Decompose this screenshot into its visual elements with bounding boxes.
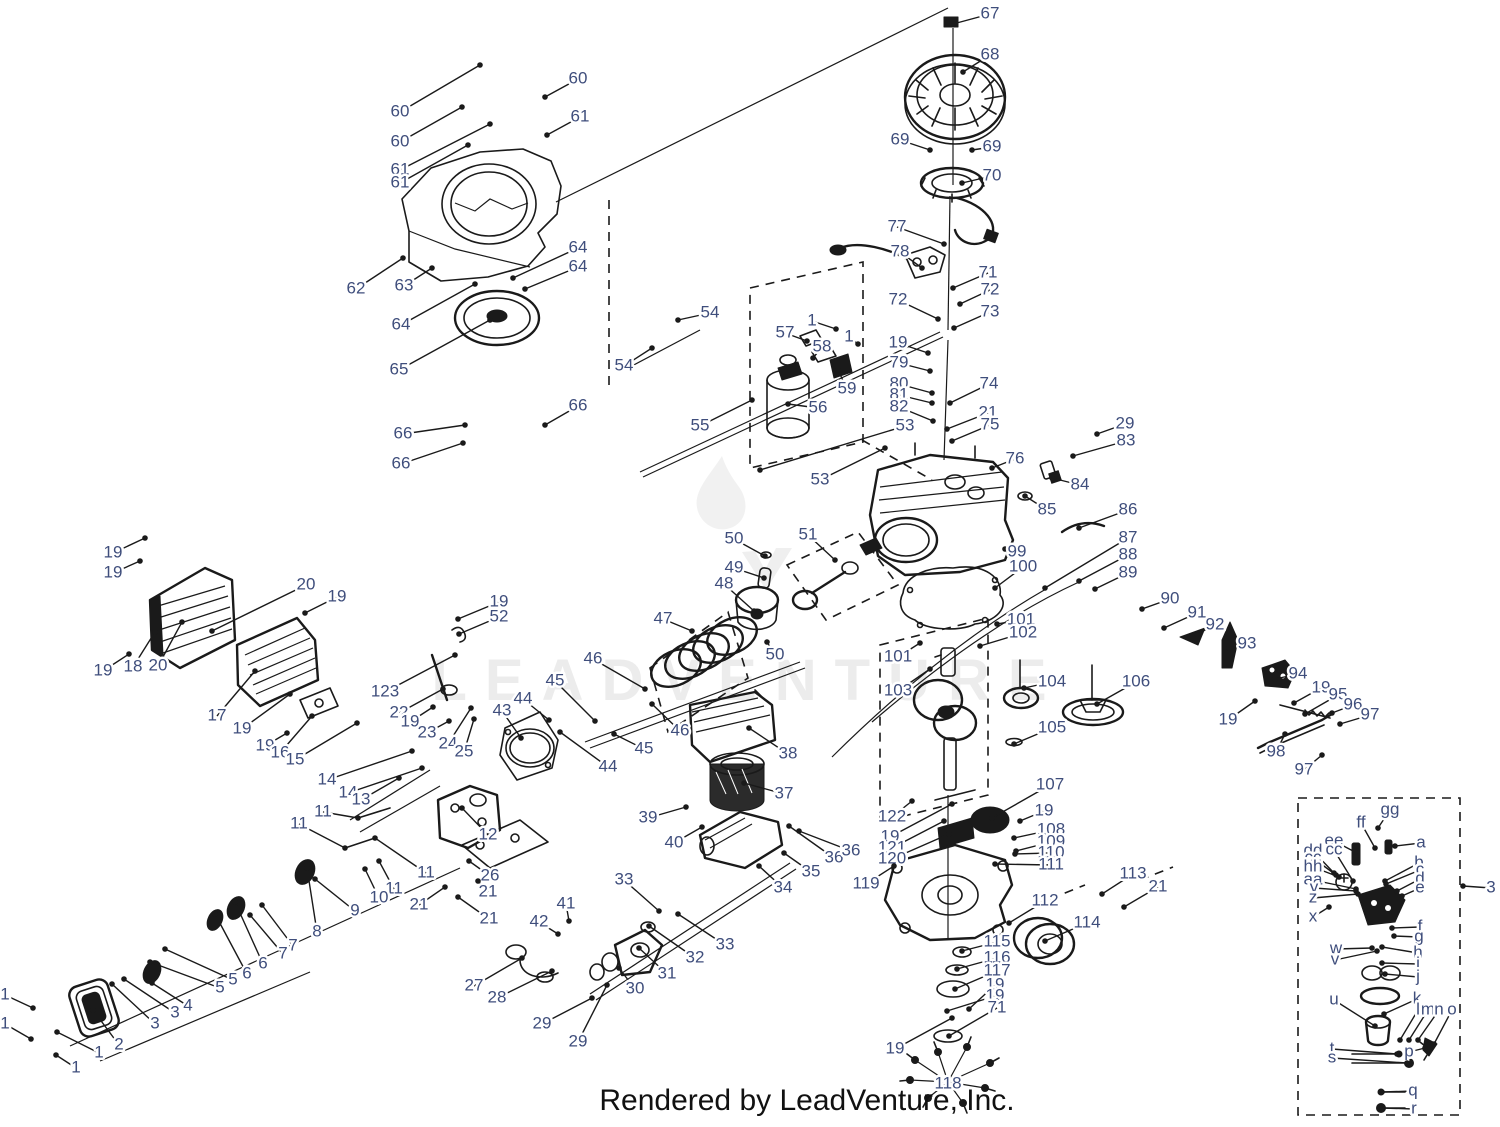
part-target-dot bbox=[746, 725, 752, 731]
part-target-dot bbox=[689, 628, 695, 634]
connecting-rod-drawing bbox=[793, 538, 882, 609]
part-target-dot bbox=[468, 705, 474, 711]
callout-105: 105 bbox=[1038, 717, 1066, 736]
part-target-dot bbox=[959, 948, 965, 954]
carburetor-drawing bbox=[590, 922, 662, 980]
part-target-dot bbox=[362, 866, 368, 872]
leader-line bbox=[1385, 974, 1418, 977]
part-target-dot bbox=[1381, 1011, 1387, 1017]
part-target-dot bbox=[992, 861, 998, 867]
part-target-dot bbox=[1431, 1041, 1437, 1047]
part-target-dot bbox=[1379, 944, 1385, 950]
part-target-dot bbox=[510, 275, 516, 281]
callout-7: 7 bbox=[288, 935, 297, 954]
callout-n: n bbox=[1434, 999, 1443, 1018]
callout-78: 78 bbox=[891, 241, 910, 260]
part-target-dot bbox=[642, 686, 648, 692]
callout-61: 61 bbox=[391, 172, 410, 191]
part-target-dot bbox=[649, 701, 655, 707]
callout-11: 11 bbox=[417, 862, 435, 881]
part-target-dot bbox=[796, 828, 802, 834]
part-target-dot bbox=[376, 858, 382, 864]
callout-28: 28 bbox=[488, 987, 507, 1006]
part-target-dot bbox=[882, 445, 888, 451]
muffler-heat-shield-drawing bbox=[150, 568, 235, 668]
part-target-dot bbox=[989, 465, 995, 471]
callout-40: 40 bbox=[665, 832, 684, 851]
part-target-dot bbox=[927, 368, 933, 374]
part-target-dot bbox=[833, 326, 839, 332]
part-target-dot bbox=[1372, 1023, 1378, 1029]
callout-61: 61 bbox=[571, 106, 590, 125]
part-target-dot bbox=[419, 765, 425, 771]
cylinder-gasket-drawing bbox=[901, 567, 1004, 629]
callout-20: 20 bbox=[297, 574, 316, 593]
leader-line bbox=[150, 962, 220, 988]
callout-30: 30 bbox=[626, 978, 645, 997]
callout-59: 59 bbox=[838, 378, 857, 397]
callout-54: 54 bbox=[615, 355, 634, 374]
callout-6: 6 bbox=[242, 963, 251, 982]
part-target-dot bbox=[927, 147, 933, 153]
part-target-dot bbox=[1422, 1045, 1428, 1051]
part-target-dot bbox=[994, 621, 1000, 627]
part-target-dot bbox=[456, 631, 462, 637]
part-target-dot bbox=[372, 835, 378, 841]
callout-r: r bbox=[1411, 1098, 1417, 1117]
part-target-dot bbox=[944, 1008, 950, 1014]
part-target-dot bbox=[1336, 874, 1342, 880]
callout-114: 114 bbox=[1073, 912, 1100, 931]
callout-50: 50 bbox=[766, 644, 785, 663]
callout-50: 50 bbox=[725, 528, 744, 547]
part-target-dot bbox=[751, 608, 757, 614]
part-target-dot bbox=[302, 610, 308, 616]
part-target-dot bbox=[855, 341, 861, 347]
part-target-dot bbox=[1404, 1060, 1410, 1066]
part-target-dot bbox=[455, 894, 461, 900]
part-target-dot bbox=[1012, 851, 1018, 857]
part-target-dot bbox=[1017, 818, 1023, 824]
part-target-dot bbox=[90, 1007, 96, 1013]
callout-m: m bbox=[1421, 999, 1435, 1018]
part-target-dot bbox=[919, 265, 925, 271]
part-target-dot bbox=[1092, 586, 1098, 592]
part-target-dot bbox=[1394, 888, 1400, 894]
callout-o: o bbox=[1447, 999, 1456, 1018]
callout-113: 113 bbox=[1119, 863, 1146, 882]
part-target-dot bbox=[757, 467, 763, 473]
part-target-dot bbox=[741, 780, 747, 786]
callout-112: 112 bbox=[1031, 890, 1058, 909]
leader-line bbox=[1045, 538, 1128, 588]
part-target-dot bbox=[1389, 925, 1395, 931]
leader-line bbox=[820, 448, 885, 480]
callout-92: 92 bbox=[1206, 614, 1225, 633]
part-target-dot bbox=[675, 317, 681, 323]
part-target-dot bbox=[949, 438, 955, 444]
oil-seal-drawing bbox=[934, 947, 971, 1042]
part-target-dot bbox=[1291, 700, 1297, 706]
part-target-dot bbox=[941, 241, 947, 247]
part-target-dot bbox=[646, 923, 652, 929]
callout-20: 20 bbox=[149, 655, 168, 674]
callout-102: 102 bbox=[1009, 622, 1037, 641]
part-target-dot bbox=[949, 801, 955, 807]
part-target-dot bbox=[636, 945, 642, 951]
callout-62: 62 bbox=[347, 278, 366, 297]
part-target-dot bbox=[546, 717, 552, 723]
part-target-dot bbox=[355, 815, 361, 821]
callout-68: 68 bbox=[981, 44, 1000, 63]
callout-89: 89 bbox=[1119, 562, 1138, 581]
part-target-dot bbox=[121, 976, 127, 982]
part-target-dot bbox=[400, 255, 406, 261]
part-target-dot bbox=[989, 815, 995, 821]
part-target-dot bbox=[342, 845, 348, 851]
callout-66: 66 bbox=[392, 453, 411, 472]
callout-60: 60 bbox=[391, 101, 410, 120]
part-target-dot bbox=[1282, 731, 1288, 737]
leader-line bbox=[400, 65, 480, 112]
callout-60: 60 bbox=[569, 68, 588, 87]
leader-line bbox=[165, 949, 233, 980]
part-target-dot bbox=[1194, 631, 1200, 637]
callout-35: 35 bbox=[802, 861, 821, 880]
part-target-dot bbox=[1337, 721, 1343, 727]
part-target-dot bbox=[1369, 945, 1375, 951]
part-target-dot bbox=[946, 831, 952, 837]
part-target-dot bbox=[259, 902, 265, 908]
part-target-dot bbox=[109, 981, 115, 987]
part-target-dot bbox=[1139, 606, 1145, 612]
part-target-dot bbox=[459, 104, 465, 110]
part-target-dot bbox=[1070, 453, 1076, 459]
cylinder-block-drawing bbox=[870, 443, 1013, 575]
callout-21: 21 bbox=[1149, 876, 1168, 895]
callout-47: 47 bbox=[654, 608, 673, 627]
callout-72: 72 bbox=[889, 289, 908, 308]
callout-66: 66 bbox=[394, 423, 413, 442]
callout-69: 69 bbox=[983, 136, 1002, 155]
part-target-dot bbox=[1076, 578, 1082, 584]
part-target-dot bbox=[656, 908, 662, 914]
callout-103: 103 bbox=[884, 680, 912, 699]
callout-72: 72 bbox=[981, 279, 1000, 298]
part-target-dot bbox=[960, 69, 966, 75]
engine-exploded-diagram: LEADVENTURE bbox=[0, 0, 1500, 1127]
callout-q: q bbox=[1408, 1080, 1417, 1099]
part-target-dot bbox=[947, 400, 953, 406]
part-target-dot bbox=[1272, 676, 1278, 682]
connecting-rod-dashed-box bbox=[787, 532, 898, 620]
callout-66: 66 bbox=[569, 395, 588, 414]
callout-gg: gg bbox=[1381, 799, 1400, 818]
part-target-dot bbox=[929, 400, 935, 406]
part-target-dot bbox=[462, 422, 468, 428]
part-target-dot bbox=[959, 180, 965, 186]
callout-60: 60 bbox=[391, 131, 410, 150]
part-target-dot bbox=[891, 863, 897, 869]
part-target-dot bbox=[487, 121, 493, 127]
callout-70: 70 bbox=[983, 165, 1002, 184]
part-target-dot bbox=[149, 980, 155, 986]
air-filter-element-drawing bbox=[710, 753, 764, 811]
callout-8: 8 bbox=[312, 921, 321, 940]
part-target-dot bbox=[162, 946, 168, 952]
part-target-dot bbox=[212, 911, 218, 917]
part-target-dot bbox=[555, 931, 561, 937]
part-target-dot bbox=[1355, 891, 1361, 897]
muffler-drawing bbox=[237, 618, 318, 706]
part-target-dot bbox=[1226, 645, 1232, 651]
callout-74: 74 bbox=[980, 373, 999, 392]
callout-x: x bbox=[1309, 906, 1318, 925]
callout-21: 21 bbox=[410, 894, 429, 913]
part-target-dot bbox=[1379, 1105, 1385, 1111]
part-target-dot bbox=[1326, 904, 1332, 910]
callout-83: 83 bbox=[1117, 430, 1136, 449]
callout-5: 5 bbox=[228, 969, 237, 988]
callout-34: 34 bbox=[774, 877, 793, 896]
callout-91: 91 bbox=[1188, 602, 1207, 621]
part-target-dot bbox=[1021, 685, 1027, 691]
callout-123: 123 bbox=[371, 681, 399, 700]
part-target-dot bbox=[1374, 948, 1380, 954]
part-target-dot bbox=[1049, 475, 1055, 481]
part-target-dot bbox=[604, 982, 610, 988]
part-target-dot bbox=[1375, 825, 1381, 831]
part-target-dot bbox=[429, 265, 435, 271]
part-target-dot bbox=[785, 401, 791, 407]
callout-19: 19 bbox=[104, 542, 123, 561]
part-target-dot bbox=[1383, 881, 1389, 887]
callout-32: 32 bbox=[686, 947, 705, 966]
callout-v: v bbox=[1331, 949, 1340, 968]
callout-56: 56 bbox=[809, 397, 828, 416]
part-target-dot bbox=[756, 863, 762, 869]
recoil-pulley-drawing bbox=[455, 291, 539, 345]
part-target-dot bbox=[957, 301, 963, 307]
part-target-dot bbox=[925, 350, 931, 356]
callout-18: 18 bbox=[124, 656, 143, 675]
callout-86: 86 bbox=[1119, 499, 1138, 518]
callout-12: 12 bbox=[479, 824, 498, 843]
callout-19: 19 bbox=[104, 562, 123, 581]
callout-39: 39 bbox=[639, 807, 658, 826]
leader-line bbox=[1382, 1108, 1414, 1109]
callout-3: 3 bbox=[1486, 877, 1495, 896]
part-target-dot bbox=[944, 426, 950, 432]
callout-49: 49 bbox=[725, 557, 744, 576]
callout-19: 19 bbox=[328, 586, 347, 605]
callout-53: 53 bbox=[896, 415, 915, 434]
part-target-dot bbox=[951, 325, 957, 331]
part-target-dot bbox=[440, 686, 446, 692]
callout-21: 21 bbox=[480, 908, 499, 927]
part-target-dot bbox=[1042, 938, 1048, 944]
part-target-dot bbox=[566, 918, 572, 924]
callout-3: 3 bbox=[170, 1002, 179, 1021]
part-target-dot bbox=[1011, 835, 1017, 841]
callout-43: 43 bbox=[493, 700, 512, 719]
part-target-dot bbox=[147, 959, 153, 965]
part-target-dot bbox=[683, 804, 689, 810]
part-target-dot bbox=[1011, 741, 1017, 747]
callout-122: 122 bbox=[878, 806, 906, 825]
callout-33: 33 bbox=[615, 869, 634, 888]
part-target-dot bbox=[1382, 971, 1388, 977]
part-target-dot bbox=[247, 912, 253, 918]
callout-25: 25 bbox=[455, 741, 474, 760]
part-target-dot bbox=[761, 575, 767, 581]
callout-z: z bbox=[1309, 887, 1318, 906]
part-target-dot bbox=[917, 640, 923, 646]
part-target-dot bbox=[1415, 1037, 1421, 1043]
callout-41: 41 bbox=[557, 893, 576, 912]
callout-101: 101 bbox=[884, 646, 912, 665]
part-target-dot bbox=[977, 643, 983, 649]
part-target-dot bbox=[409, 748, 415, 754]
callout-19: 19 bbox=[886, 1038, 905, 1057]
leader-line bbox=[1382, 963, 1418, 964]
callout-11: 11 bbox=[314, 801, 332, 820]
callout-9: 9 bbox=[350, 900, 359, 919]
callout-1: 1 bbox=[0, 1013, 9, 1032]
callout-31: 31 bbox=[658, 963, 677, 982]
part-target-dot bbox=[54, 1029, 60, 1035]
part-target-dot bbox=[477, 62, 483, 68]
callout-cc: cc bbox=[1326, 839, 1344, 858]
part-target-dot bbox=[487, 317, 493, 323]
callout-38: 38 bbox=[779, 743, 798, 762]
part-target-dot bbox=[966, 1006, 972, 1012]
part-target-dot bbox=[304, 865, 310, 871]
part-target-dot bbox=[675, 911, 681, 917]
part-target-dot bbox=[142, 535, 148, 541]
callout-21: 21 bbox=[479, 881, 498, 900]
callout-46: 46 bbox=[584, 648, 603, 667]
part-target-dot bbox=[786, 823, 792, 829]
part-target-dot bbox=[1161, 625, 1167, 631]
callout-71: 71 bbox=[988, 997, 1007, 1016]
callout-4: 4 bbox=[183, 995, 192, 1014]
part-target-dot bbox=[611, 731, 617, 737]
callout-2: 2 bbox=[114, 1034, 123, 1053]
part-target-dot bbox=[312, 876, 318, 882]
callout-44: 44 bbox=[514, 688, 533, 707]
callout-29: 29 bbox=[533, 1013, 552, 1032]
part-target-dot bbox=[749, 397, 755, 403]
part-target-dot bbox=[30, 1005, 36, 1011]
part-target-dot bbox=[950, 285, 956, 291]
part-target-dot bbox=[460, 440, 466, 446]
callout-14: 14 bbox=[318, 769, 337, 788]
callout-58: 58 bbox=[813, 336, 832, 355]
part-target-dot bbox=[152, 629, 158, 635]
part-target-dot bbox=[941, 818, 947, 824]
part-target-dot bbox=[544, 132, 550, 138]
callout-1: 1 bbox=[71, 1057, 80, 1076]
callout-u: u bbox=[1329, 989, 1338, 1008]
part-target-dot bbox=[1399, 893, 1405, 899]
part-target-dot bbox=[28, 1036, 34, 1042]
callout-29: 29 bbox=[569, 1031, 588, 1050]
part-target-dot bbox=[1352, 849, 1358, 855]
callout-19: 19 bbox=[94, 660, 113, 679]
leader-line bbox=[315, 879, 355, 911]
part-target-dot bbox=[1252, 698, 1258, 704]
callout-111: 111 bbox=[1038, 854, 1064, 873]
part-target-dot bbox=[442, 884, 448, 890]
part-target-dot bbox=[542, 94, 548, 100]
callout-p: p bbox=[1404, 1041, 1413, 1060]
callout-73: 73 bbox=[981, 301, 1000, 320]
part-target-dot bbox=[284, 730, 290, 736]
callout-j: j bbox=[1415, 966, 1420, 985]
part-target-dot bbox=[804, 338, 810, 344]
callout-104: 104 bbox=[1038, 671, 1066, 690]
part-target-dot bbox=[137, 558, 143, 564]
intake-manifold-drawing bbox=[700, 812, 782, 868]
part-target-dot bbox=[1397, 1037, 1403, 1043]
part-target-dot bbox=[1099, 891, 1105, 897]
part-target-dot bbox=[1094, 701, 1100, 707]
callout-65: 65 bbox=[390, 359, 409, 378]
callout-63: 63 bbox=[395, 275, 414, 294]
part-target-dot bbox=[699, 824, 705, 830]
callout-77: 77 bbox=[888, 216, 907, 235]
callout-1: 1 bbox=[94, 1042, 103, 1061]
callout-13: 13 bbox=[352, 789, 371, 808]
callout-23: 23 bbox=[418, 722, 437, 741]
part-target-dot bbox=[935, 316, 941, 322]
callout-e: e bbox=[1415, 877, 1424, 896]
part-target-dot bbox=[949, 1015, 955, 1021]
callout-79: 79 bbox=[890, 352, 909, 371]
callout-37: 37 bbox=[775, 783, 794, 802]
callout-97: 97 bbox=[1361, 704, 1380, 723]
callout-36: 36 bbox=[842, 840, 861, 859]
part-target-dot bbox=[1302, 711, 1308, 717]
part-target-dot bbox=[1042, 585, 1048, 591]
callout-ff: ff bbox=[1356, 812, 1365, 831]
part-target-dot bbox=[616, 965, 622, 971]
callout-76: 76 bbox=[1006, 448, 1025, 467]
callout-119: 119 bbox=[852, 873, 879, 892]
part-target-dot bbox=[466, 858, 472, 864]
callout-10: 10 bbox=[370, 887, 389, 906]
part-target-dot bbox=[835, 367, 841, 373]
callout-84: 84 bbox=[1071, 474, 1090, 493]
part-target-dot bbox=[542, 422, 548, 428]
part-target-dot bbox=[396, 775, 402, 781]
part-target-dot bbox=[649, 345, 655, 351]
callout-27: 27 bbox=[465, 975, 484, 994]
part-target-dot bbox=[927, 666, 933, 672]
callout-51: 51 bbox=[799, 524, 818, 543]
part-target-dot bbox=[126, 651, 132, 657]
part-target-dot bbox=[455, 616, 461, 622]
callout-s: s bbox=[1328, 1047, 1337, 1066]
callout-1: 1 bbox=[0, 984, 9, 1003]
leader-line bbox=[400, 145, 468, 183]
callout-75: 75 bbox=[981, 414, 1000, 433]
callout-19: 19 bbox=[233, 718, 252, 737]
flywheel-drawing bbox=[905, 17, 1005, 144]
flame-watermark-icon bbox=[697, 456, 746, 529]
callout-42: 42 bbox=[530, 911, 549, 930]
